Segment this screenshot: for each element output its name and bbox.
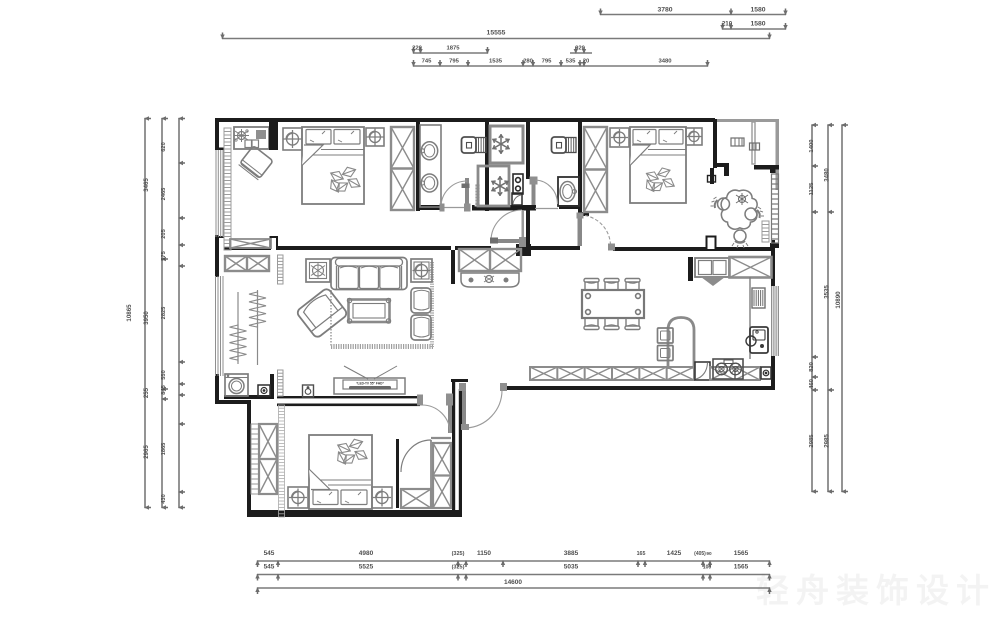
svg-text:10865: 10865 [126,304,133,322]
svg-text:2465: 2465 [161,188,167,201]
svg-text:2965: 2965 [143,445,150,459]
svg-text:430: 430 [161,494,167,504]
svg-text:3885: 3885 [564,550,579,557]
svg-text:3950: 3950 [143,311,150,325]
svg-text:2985: 2985 [809,434,815,448]
svg-text:90: 90 [706,551,712,556]
svg-text:220: 220 [412,46,423,52]
svg-text:3780: 3780 [657,7,672,14]
svg-text:1125: 1125 [809,182,815,196]
svg-text:545: 545 [264,564,275,571]
svg-text:1875: 1875 [446,46,460,52]
svg-text:(325): (325) [452,565,465,571]
svg-text:460: 460 [809,378,815,389]
svg-text:550: 550 [161,370,167,380]
svg-text:2985: 2985 [824,434,831,448]
svg-text:1565: 1565 [734,550,749,557]
svg-text:3535: 3535 [824,285,831,299]
svg-text:轻舟装饰设计: 轻舟装饰设计 [756,572,996,609]
svg-text:1150: 1150 [477,550,491,557]
svg-text:2825: 2825 [161,307,167,320]
svg-text:4980: 4980 [359,550,374,557]
svg-text:820: 820 [809,361,815,372]
svg-text:15555: 15555 [487,30,506,37]
svg-text:100: 100 [703,565,712,571]
svg-text:920: 920 [575,46,586,52]
svg-text:210: 210 [722,21,733,28]
svg-text:205: 205 [161,229,167,239]
svg-text:1425: 1425 [667,550,682,557]
svg-text:1580: 1580 [750,7,765,14]
svg-text:1565: 1565 [734,564,749,571]
svg-text:(405): (405) [694,551,706,557]
svg-text:165: 165 [637,551,646,557]
svg-text:535: 535 [566,59,577,65]
svg-text:845: 845 [161,385,167,395]
svg-text:3465: 3465 [143,178,150,192]
svg-text:(325): (325) [452,551,465,557]
svg-text:1400: 1400 [809,139,815,153]
svg-text:620: 620 [161,142,167,152]
svg-text:20: 20 [583,59,590,65]
svg-text:795: 795 [449,59,460,65]
svg-text:14600: 14600 [504,579,522,586]
svg-text:545: 545 [264,550,275,557]
svg-text:745: 745 [422,59,433,65]
svg-text:5525: 5525 [359,564,374,571]
svg-text:1865: 1865 [161,443,167,456]
svg-text:10890: 10890 [835,291,842,309]
svg-text:280: 280 [523,59,534,65]
svg-text:255: 255 [143,387,150,398]
svg-text:575: 575 [161,251,167,261]
svg-text:5035: 5035 [564,564,579,571]
svg-text:3480: 3480 [824,168,831,182]
svg-text:*LED-TV 55" FHD*: *LED-TV 55" FHD* [356,381,384,385]
svg-text:3480: 3480 [658,59,672,65]
svg-text:795: 795 [542,59,553,65]
svg-text:1580: 1580 [750,21,765,28]
svg-text:1535: 1535 [489,59,503,65]
